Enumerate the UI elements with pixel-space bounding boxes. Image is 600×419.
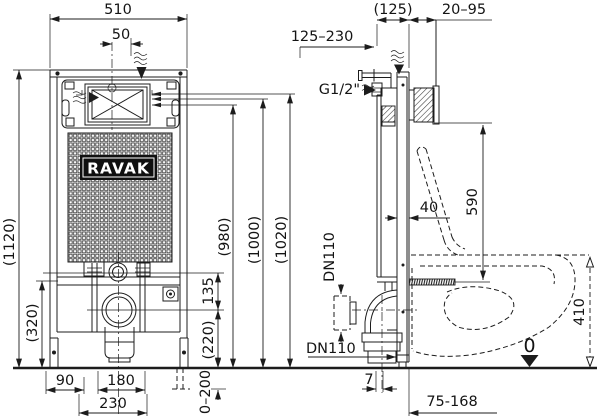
frame-screw-dots (402, 84, 405, 314)
dim-bowl-height-label: 410 (572, 298, 588, 326)
ravak-logo: RAVAK (80, 155, 157, 180)
dim-anchor-spacing-label: 230 (99, 396, 127, 412)
water-inlet-callout: G1/2" (319, 82, 376, 98)
dim-total-height-label: (1120) (2, 218, 18, 266)
dim-drain-height-label: (220) (201, 321, 217, 360)
frame-profile (397, 72, 409, 368)
technical-drawing: RAVAK (0, 0, 600, 419)
toilet-bowl-outline (411, 147, 589, 356)
bowl-height-dimension: 410 (572, 258, 594, 367)
water-flow-arrow-left (73, 92, 99, 104)
dim-foot-offset-label: 90 (56, 373, 74, 389)
dim-inlet-offset-label: 50 (112, 27, 130, 43)
fill-valve (382, 106, 395, 126)
wall-bracket (409, 20, 492, 124)
dim-foot-adjust-label: 0–200 (198, 370, 214, 414)
dim-stud-spacing-label: 180 (107, 373, 135, 389)
dim-lower-frame-height-label: (320) (25, 304, 41, 343)
dim-floor-outlet-range-label: 75-168 (426, 394, 477, 410)
dim-stud-to-drain-label: 135 (201, 277, 217, 305)
dim-bracket-height-label: 590 (465, 188, 481, 216)
drawing-page: RAVAK (0, 0, 600, 419)
dim-module-depth-label: (125) (374, 2, 413, 18)
dim-panel-height-1-label: (980) (217, 218, 233, 257)
wc-fixing-rod (409, 279, 490, 285)
drain-bottom-label: DN110 (306, 341, 356, 357)
ravak-logo-text: RAVAK (87, 160, 150, 178)
dim-profile-depth-label: 40 (420, 200, 438, 216)
flush-pipe-connector (109, 263, 127, 281)
dim-finished-wall-range-label: 125–230 (291, 29, 354, 45)
water-inlet-label: G1/2" (319, 82, 360, 98)
dim-pipe-offset-label: 7 (364, 372, 373, 388)
connection-box (163, 287, 178, 301)
vent-arrow (391, 51, 404, 75)
dim-width-label: 510 (104, 2, 132, 18)
drain-top-label: DN110 (322, 232, 338, 282)
side-view (334, 20, 589, 393)
side-dimensions: (125) 20–95 125–230 G1/2" 40 590 DN110 D… (291, 2, 594, 416)
inspection-window (76, 84, 158, 125)
dim-panel-height-2-label: (1000) (247, 216, 263, 264)
panel-reference-lines (152, 92, 295, 108)
dn110-stub (334, 284, 356, 342)
dim-wall-gap-label: 20–95 (442, 2, 486, 18)
perforated-plate (68, 133, 172, 262)
water-flow-arrow-top (134, 53, 147, 80)
datum-zero-label: 0 (523, 335, 535, 357)
dim-panel-height-3-label: (1020) (274, 216, 290, 264)
